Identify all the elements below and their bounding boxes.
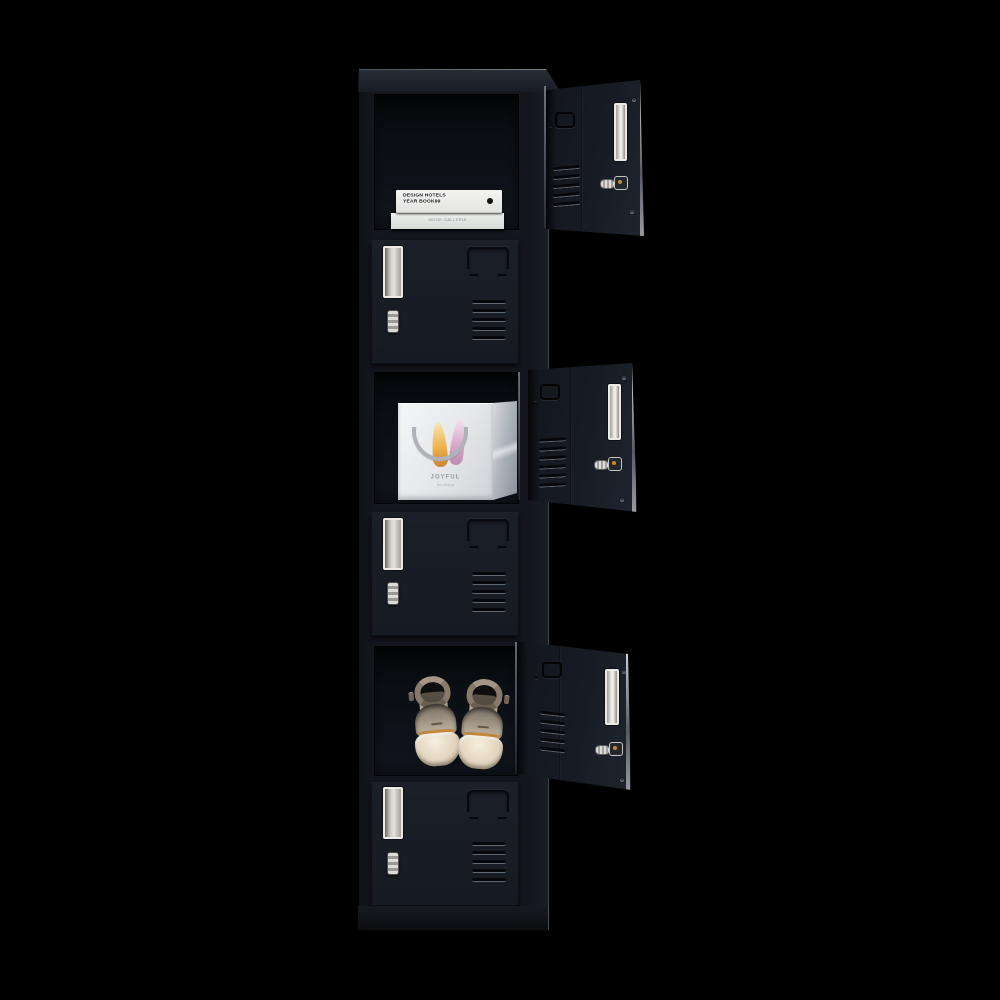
vent-slots: [472, 842, 506, 882]
cam-lock: [387, 852, 399, 875]
key-grip: [600, 179, 615, 189]
rivet: [632, 98, 636, 102]
door-4-closed: [371, 512, 519, 636]
book-design-hotels: DESIGN HOTELS YEAR BOOK99: [396, 190, 502, 213]
label-holder: [614, 103, 627, 161]
door-3-open: [518, 360, 640, 512]
door-edge-highlight: [640, 78, 644, 236]
key-gold-dot: [618, 180, 622, 184]
vent-slots: [539, 437, 566, 487]
key-gold-dot: [612, 461, 616, 465]
cam-lock-with-key: [594, 456, 625, 473]
rivet: [620, 498, 624, 502]
cam-lock: [387, 582, 399, 605]
key-grip: [594, 460, 609, 470]
rivet: [630, 210, 634, 214]
toe-box: [456, 734, 504, 771]
vent-slots: [540, 711, 565, 754]
door-hinge-shade: [546, 78, 556, 236]
recessed-handle: [467, 247, 509, 269]
door-5-open: [515, 636, 635, 794]
handle-cutout: [555, 112, 575, 128]
door-1-open: [545, 78, 647, 236]
recessed-handle: [467, 519, 509, 541]
door-hinge-shade: [517, 636, 529, 794]
door-panel-seam: [570, 366, 572, 506]
screw-dot: [549, 124, 552, 127]
door-1-hinge-highlight: [544, 86, 546, 228]
label-holder: [608, 384, 621, 440]
vent-slots: [472, 300, 506, 340]
label-holder: [383, 518, 403, 570]
door-edge-highlight: [632, 360, 636, 512]
door-2-closed: [371, 240, 519, 364]
product-photo-stage: MOOK GALLERIA DESIGN HOTELS YEAR BOOK99: [0, 0, 1000, 1000]
gift-bag-side: [493, 401, 517, 500]
rivet: [620, 778, 624, 782]
book-bottom: MOOK GALLERIA: [391, 213, 504, 229]
vent-slots: [472, 572, 506, 612]
locker-body: MOOK GALLERIA DESIGN HOTELS YEAR BOOK99: [358, 92, 549, 906]
screw-dot: [534, 398, 537, 401]
door-hinge-shade: [528, 360, 540, 512]
gift-bag: JOYFUL for living: [398, 401, 517, 500]
door-panel-seam: [581, 84, 583, 230]
book-bottom-spine-text: MOOK GALLERIA: [415, 218, 481, 222]
rivet: [622, 376, 626, 380]
book-logo-dot: [487, 198, 493, 204]
compartment-5-interior: [374, 646, 519, 776]
bag-sub-text: for living: [419, 483, 471, 487]
door-5-hinge-highlight: [515, 642, 517, 774]
key-grip: [595, 745, 610, 755]
handle-cutout: [542, 662, 562, 678]
door-6-closed: [371, 782, 519, 906]
vent-slots: [553, 165, 580, 207]
screw-dot: [535, 676, 538, 679]
strap-buckle: [408, 692, 414, 701]
compartment-3-interior: JOYFUL for living: [374, 372, 519, 504]
cam-lock-with-key: [595, 741, 626, 758]
label-holder: [383, 246, 403, 298]
door-3-hinge-highlight: [518, 372, 520, 500]
cam-lock: [387, 310, 399, 333]
locker-base: [358, 906, 549, 930]
door-edge-highlight: [626, 636, 630, 794]
label-holder: [605, 669, 619, 725]
key-gold-dot: [613, 746, 617, 750]
cam-lock-with-key: [600, 175, 631, 192]
left-shoe: [408, 674, 463, 768]
recessed-handle: [467, 790, 509, 812]
bag-brand-text: JOYFUL: [414, 473, 477, 480]
strap-buckle: [504, 695, 510, 704]
compartment-1-interior: MOOK GALLERIA DESIGN HOTELS YEAR BOOK99: [374, 94, 519, 230]
locker-top-panel: [356, 67, 562, 94]
label-holder: [383, 787, 403, 839]
right-shoe: [455, 677, 510, 771]
book-title-line2: YEAR BOOK99: [403, 199, 490, 205]
handle-cutout: [540, 384, 560, 400]
